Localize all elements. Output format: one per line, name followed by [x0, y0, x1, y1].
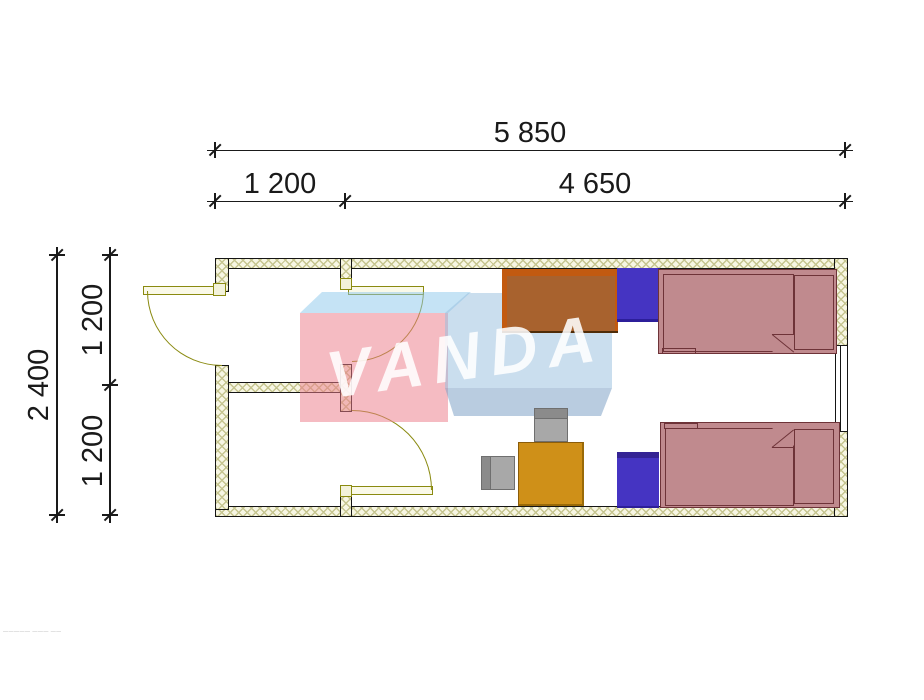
dimension-label-left-total: 2 400: [23, 285, 53, 485]
bed-top-pillow: [794, 275, 834, 350]
door-swing-vestibule: [352, 290, 424, 362]
bed-bottom-pillow: [794, 429, 834, 504]
chair-left: [481, 456, 515, 490]
bed-top-footboard: [662, 348, 696, 354]
door-hinge-vestibule: [340, 278, 352, 290]
dimension-line-left-total: [56, 247, 57, 523]
door-hinge-utility: [340, 485, 352, 497]
floor-plan-drawing: 5 850 1 200 4 650 2 400 1 200 1 200: [0, 0, 924, 700]
bed-bottom-blanket: [665, 428, 794, 506]
wall-top: [215, 258, 848, 269]
dimension-label-top-left: 1 200: [205, 168, 355, 201]
dimension-label-left-lower: 1 200: [77, 376, 105, 526]
dimension-label-top-total: 5 850: [430, 117, 630, 150]
wall-partition-horizontal: [228, 382, 342, 393]
bed-top-fold-line: [772, 334, 794, 335]
nightstand-bottom: [617, 452, 659, 508]
wall-partition-stub-middle: [340, 364, 352, 412]
table: [518, 442, 584, 506]
chair-top-backrest: [535, 409, 567, 419]
bed-top-blanket: [663, 274, 794, 352]
fine-print-text: ――――― ――― ―― ――: [3, 629, 61, 636]
bed-bottom-fold-line: [772, 447, 794, 448]
door-swing-exterior: [147, 291, 222, 366]
chair-left-backrest: [482, 457, 491, 489]
door-swing-utility: [352, 410, 432, 490]
bed-top: [658, 269, 837, 354]
desk-top-surface: [507, 276, 615, 331]
nightstand-top: [617, 268, 660, 322]
window-pane-line: [840, 346, 841, 431]
window-right-wall: [835, 345, 848, 432]
dimension-label-left-upper: 1 200: [77, 245, 105, 395]
bed-bottom-footboard: [664, 423, 698, 429]
wall-left-lower: [215, 365, 229, 510]
bed-bottom: [660, 422, 840, 508]
chair-top: [534, 408, 568, 442]
desk: [502, 269, 618, 333]
dimension-label-top-right: 4 650: [495, 168, 695, 201]
nightstand-bottom-top-edge: [617, 452, 659, 458]
watermark-arrow-base: [445, 388, 612, 416]
